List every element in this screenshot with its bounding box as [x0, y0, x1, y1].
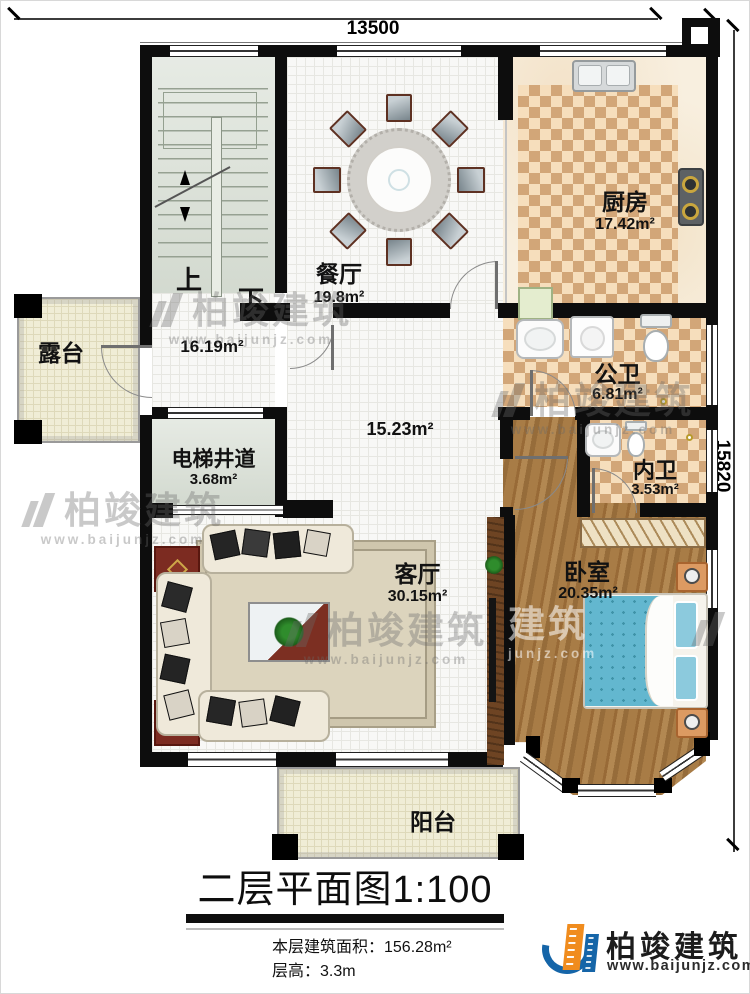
balcony-post: [498, 834, 524, 860]
sofa-cushion: [160, 618, 190, 648]
wall-left-lower: [140, 415, 152, 767]
inner-toilet-tank: [625, 421, 647, 431]
wall-elevator-bottom-b: [283, 500, 333, 518]
inner-bath-sink-basin: [592, 430, 614, 449]
living-label: 客厅: [370, 562, 465, 587]
elevator-label: 电梯井道: [152, 448, 275, 471]
public-bath-door-leaf: [530, 370, 533, 416]
dining-chair: [386, 238, 412, 266]
stove-burner: [682, 203, 699, 220]
cabinet-plant: [485, 554, 503, 576]
bay-window-bottom: [578, 784, 656, 797]
wall-elevator-bottom-a: [140, 503, 173, 518]
balcony-floor: [277, 767, 520, 859]
bedroom-label: 卧室: [542, 560, 632, 585]
public-bath-label: 公卫: [570, 362, 665, 387]
top-dimension-label: 13500: [323, 18, 423, 40]
dining-chair: [386, 94, 412, 122]
balcony-post: [272, 834, 298, 860]
stair-up-arrow: [180, 170, 190, 185]
wall-living-bottom-a: [152, 752, 188, 767]
dining-window: [337, 45, 461, 57]
dining-table-center: [388, 169, 410, 191]
living-window: [188, 752, 276, 767]
bath-sink-basin: [524, 327, 556, 351]
wall-kitchen-left: [498, 57, 513, 120]
wall-left-upper: [140, 45, 152, 347]
public-bath-area: 6.81m²: [570, 386, 665, 404]
table-plant: [271, 616, 307, 648]
elevator-area: 3.68m²: [152, 472, 275, 489]
washing-machine-drum: [580, 326, 605, 351]
kitchen-sink-basin: [606, 65, 630, 86]
wardrobe: [580, 518, 706, 548]
stove-burner: [682, 176, 699, 193]
sofa-cushion: [206, 696, 236, 726]
flue-hole: [691, 27, 708, 44]
hall-area: 15.23m²: [350, 420, 450, 440]
terrace-label: 露台: [28, 341, 94, 366]
wall-living-bottom-b: [276, 752, 336, 767]
balcony-door-window: [336, 752, 448, 767]
floor-plan-page: 13500 15820: [0, 0, 750, 994]
elevator-bottom-line: [173, 505, 283, 515]
sofa-cushion: [238, 698, 267, 727]
kitchen-door-leaf: [495, 261, 498, 309]
logo-building-blue: [582, 934, 599, 972]
wall-elevator-top-a: [152, 407, 168, 419]
inner-bath-window: [706, 430, 718, 492]
plan-title: 二层平面图1:100: [180, 858, 510, 913]
stair-down-arrow: [180, 207, 190, 222]
sofa-cushion: [160, 654, 191, 685]
bed-blanket: [645, 596, 673, 706]
stair-window: [170, 45, 258, 57]
wall-living-bedroom: [503, 515, 515, 745]
sofa-cushion: [303, 529, 331, 557]
inner-bath-door-leaf: [592, 468, 595, 513]
logo-website: www.baijunjz.com: [607, 958, 750, 974]
kitchen-window: [540, 45, 666, 57]
tv: [489, 598, 496, 702]
nightstand-lamp: [684, 568, 700, 584]
dining-chair: [457, 167, 485, 193]
inner-bath-label: 内卫: [610, 459, 700, 483]
kitchen-cabinet: [518, 287, 553, 320]
wall-pubbath-bottom-right: [575, 407, 706, 420]
bedroom-area: 20.35m²: [538, 585, 638, 603]
terrace-post: [14, 294, 42, 318]
kitchen-sink-basin: [578, 65, 602, 86]
kitchen-opening-line: [505, 120, 507, 303]
floor-height-stat: 层高：3.3m: [272, 957, 356, 981]
bed-pillow: [674, 601, 698, 649]
stair-stringer: [211, 117, 222, 297]
terrace-post: [14, 420, 42, 444]
floor-area-stat: 本层建筑面积：156.28m²: [272, 933, 452, 957]
terrace-door-leaf: [101, 345, 152, 348]
bedroom-door-leaf: [515, 456, 568, 459]
company-logo: 柏竣建筑 www.baijunjz.com: [540, 916, 745, 986]
right-dimension-line: [733, 30, 735, 852]
sofa-cushion: [241, 528, 270, 557]
dining-chair: [313, 167, 341, 193]
wall-corridor-a: [500, 417, 513, 459]
balcony-label: 阳台: [400, 810, 466, 835]
stair-hall-area: 16.19m²: [152, 338, 272, 357]
bed-pillow: [674, 655, 698, 701]
living-area: 30.15m²: [370, 588, 465, 606]
wall-stair-right: [275, 57, 287, 293]
toilet-bowl: [643, 330, 669, 362]
wall-innerbath-bottom-b: [640, 503, 706, 517]
public-bath-window: [706, 325, 718, 405]
nightstand-lamp: [684, 714, 700, 730]
toilet-tank: [640, 314, 672, 328]
title-underline-thin: [186, 928, 504, 930]
inner-bath-area: 3.53m²: [610, 482, 700, 499]
stair-up-label: 上: [174, 266, 204, 295]
sofa-cushion: [210, 530, 241, 561]
kitchen-label: 厨房: [575, 190, 675, 215]
dining-label: 餐厅: [289, 262, 389, 287]
floor-drain: [686, 434, 693, 441]
kitchen-area: 17.42m²: [575, 216, 675, 234]
sofa-cushion: [273, 531, 302, 560]
elevator-door: [168, 407, 263, 419]
stair-down-label: 下: [236, 286, 266, 315]
window-sill-line: [140, 42, 718, 43]
hall-door-leaf: [331, 325, 334, 370]
inner-toilet-bowl: [627, 432, 645, 457]
wall-innerbath-bottom-a: [577, 503, 590, 517]
title-underline: [186, 914, 504, 923]
watermark-logo-icon: [22, 493, 56, 529]
dining-area: 19.8m²: [289, 289, 389, 307]
bay-post: [654, 778, 672, 793]
